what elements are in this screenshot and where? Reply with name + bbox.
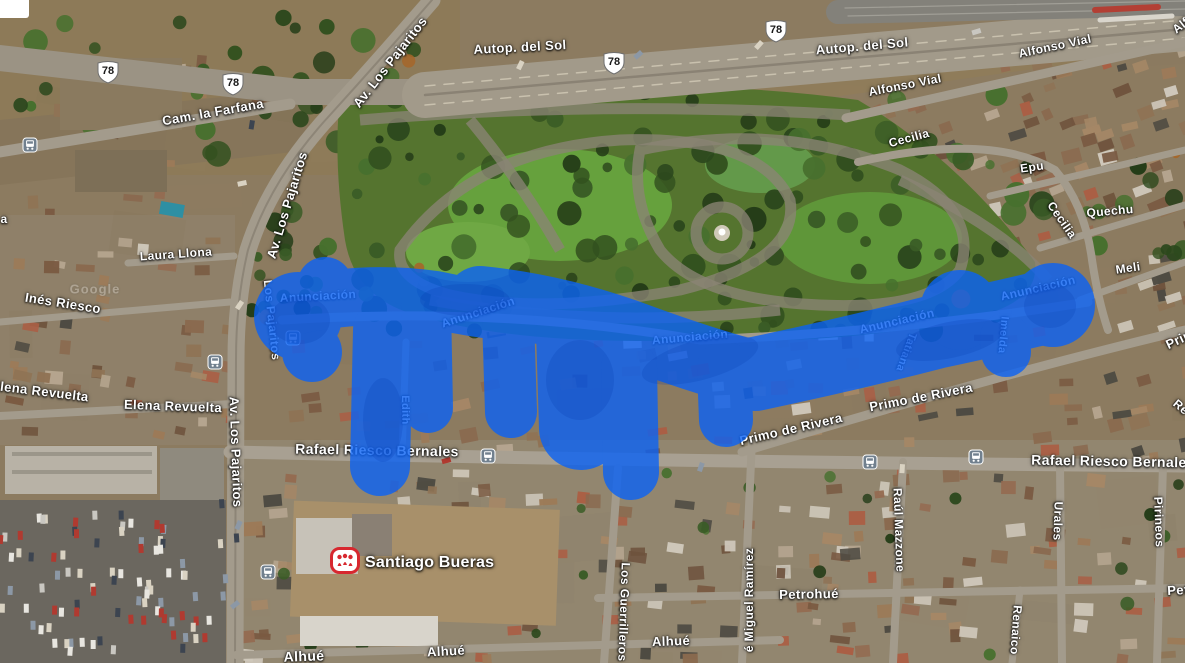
route-number: 78 [220,77,246,89]
route-78-shield-icon: 78 [95,61,121,85]
route-78-shield-icon: 78 [601,52,627,76]
route-78-shield-icon: 78 [220,73,246,97]
poi-label[interactable]: Santiago Bueras [365,554,494,572]
bus-stop-icon[interactable] [23,138,38,153]
ghost-street-label: Tatiana [893,331,918,373]
street-label: Petrohué [779,586,839,602]
street-label: Elena Revuelta [0,378,90,405]
street-label: Urales [1050,501,1065,541]
street-label: Los Guerrilleros [615,562,632,662]
imagery-watermark: Google [70,282,121,297]
street-label: Alhué [283,647,324,663]
ghost-street-label: Edith [399,395,411,425]
street-label: Rafael Riesco Bernales [295,441,459,460]
street-label: Primo de Rivera [868,380,974,415]
street-label: Quechu [1086,202,1134,220]
route-78-shield-icon: 78 [763,20,789,44]
street-label: Primo de Rivera [738,410,844,448]
bus-stop-icon[interactable] [481,449,496,464]
ghost-street-label: Anunciación [651,327,728,348]
route-number: 78 [95,65,121,77]
street-label-fragment: Primo de Rivera [1163,294,1185,352]
ghost-street-label: Imelda [995,316,1010,354]
ghost-street-label: Anunciación [858,306,936,337]
corner-white-box [0,0,29,18]
street-label: Cecilia [1044,199,1079,241]
street-label: Elena Revuelta [124,397,223,415]
street-label: Av. Los Pajaritos [264,150,311,260]
street-label-fragment: Re [1170,396,1185,417]
street-label-fragment: a [0,212,7,226]
ghost-street-label: Anunciación [999,273,1077,304]
bus-stop-icon[interactable] [261,565,276,580]
ghost-street-label: Anunciación [279,287,356,305]
street-label-fragment: Petrohué [1167,580,1185,598]
santiago-bueras-logo-icon[interactable] [330,547,360,579]
street-label: Alhué [652,633,691,649]
street-label: Alfonso Vial [1017,31,1092,60]
route-number: 78 [763,24,789,36]
bus-stop-icon[interactable] [286,331,301,346]
bus-stop-icon[interactable] [863,455,878,470]
street-label-fragment: Alfonso Vial [1170,0,1185,36]
street-label: Rafael Riesco Bernales [1031,452,1185,471]
poi-santiago-bueras[interactable]: Santiago Bueras [330,547,494,579]
street-label: Av. Los Pajaritos [227,396,246,507]
street-label: Alfonso Vial [867,71,942,99]
street-label: Cam. la Farfana [161,96,265,129]
street-label: é Miguel Ramírez [742,548,756,652]
street-label: Av. Los Pajaritos [350,14,430,111]
street-label: Cecilia [887,126,931,150]
street-label: Meli [1115,259,1142,276]
street-label: Laura Llona [139,244,212,263]
street-label: Epu [1019,158,1045,175]
map-labels-layer: Autop. del SolAutop. del SolAlfonso Vial… [0,0,1185,663]
street-label: Autop. del Sol [473,37,567,57]
street-label: Autop. del Sol [815,34,909,57]
bus-stop-icon[interactable] [208,355,223,370]
street-label: Pirineos [1151,496,1167,547]
street-label: Renaico [1007,605,1024,655]
route-number: 78 [601,56,627,68]
ghost-street-label: Anunciación [440,294,517,331]
street-label: Raúl Mazzone [891,488,908,573]
bus-stop-icon[interactable] [969,450,984,465]
satellite-map[interactable]: Autop. del SolAutop. del SolAlfonso Vial… [0,0,1185,663]
street-label: Alhué [427,643,466,660]
